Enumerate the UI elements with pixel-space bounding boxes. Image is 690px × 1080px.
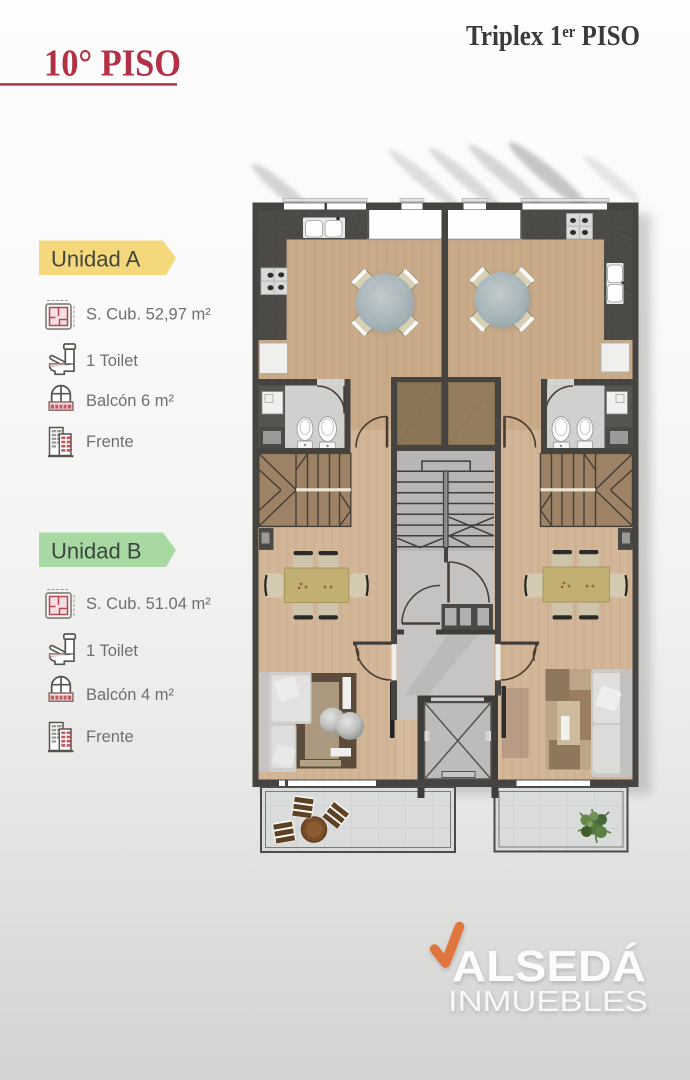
- svg-text:10° PISO: 10° PISO: [44, 43, 181, 85]
- svg-text:Balcón 4 m²: Balcón 4 m²: [86, 686, 175, 704]
- svg-text:INMUEBLES: INMUEBLES: [448, 986, 648, 1018]
- svg-text:S. Cub. 52,97 m²: S. Cub. 52,97 m²: [86, 306, 211, 324]
- svg-text:ALSEDÁ: ALSEDÁ: [452, 941, 646, 991]
- svg-text:S. Cub. 51.04 m²: S. Cub. 51.04 m²: [86, 595, 211, 613]
- svg-text:1 Toilet: 1 Toilet: [86, 642, 138, 660]
- svg-text:Unidad A: Unidad A: [51, 247, 141, 272]
- svg-text:Unidad B: Unidad B: [51, 539, 142, 564]
- svg-text:Balcón 6 m²: Balcón 6 m²: [86, 392, 175, 410]
- svg-text:Triplex 1er PISO: Triplex 1er PISO: [466, 20, 640, 52]
- svg-text:Frente: Frente: [86, 433, 134, 451]
- svg-text:Frente: Frente: [86, 728, 134, 746]
- svg-text:1 Toilet: 1 Toilet: [86, 352, 138, 370]
